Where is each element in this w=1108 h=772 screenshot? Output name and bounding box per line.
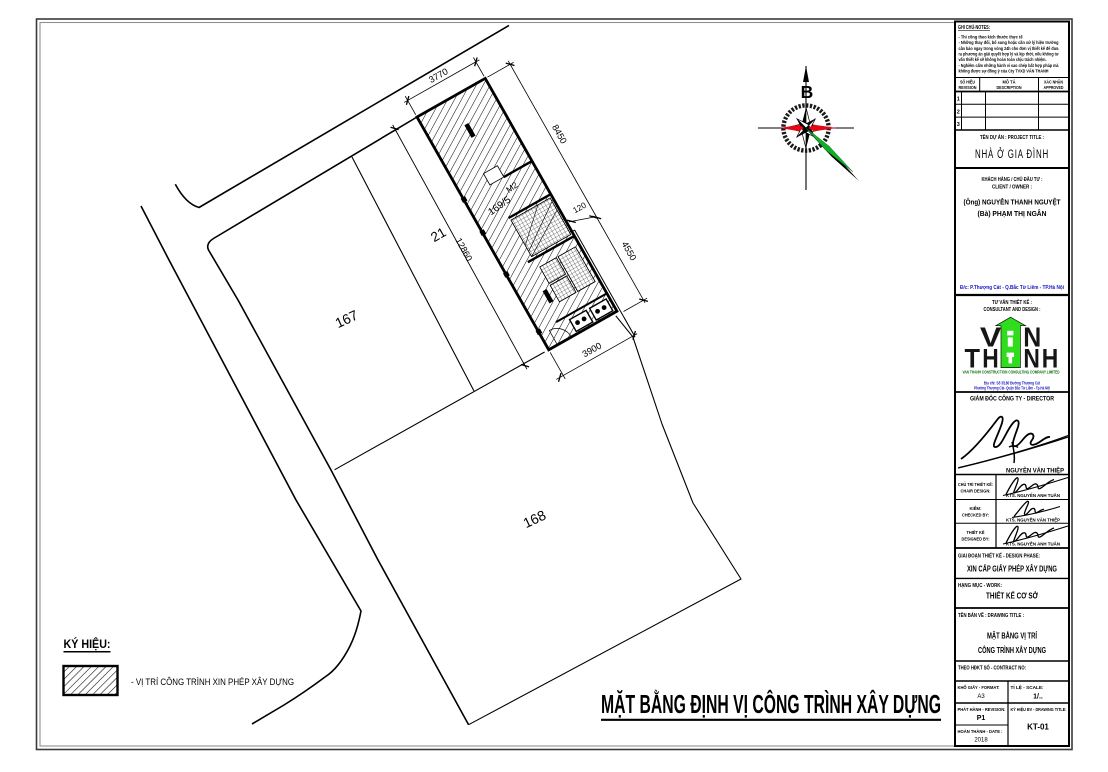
svg-text:CÔNG TRÌNH XÂY DỰNG: CÔNG TRÌNH XÂY DỰNG — [978, 646, 1046, 655]
svg-text:DESIGNED BY:: DESIGNED BY: — [962, 537, 990, 542]
svg-text:CHECKED BY:: CHECKED BY: — [962, 513, 989, 518]
svg-text:ra phương án giải quyết hợp lý: ra phương án giải quyết hợp lý và kịp th… — [959, 50, 1060, 56]
svg-text:KT-01: KT-01 — [1027, 723, 1049, 732]
svg-text:TÊN BẢN VẼ : DRAWING TITLE :: TÊN BẢN VẼ : DRAWING TITLE : — [958, 611, 1024, 619]
svg-text:không được sự đồng ý của Cty T: không được sự đồng ý của Cty TVXD VĂN TH… — [959, 67, 1049, 73]
svg-text:HẠNG MỤC - WORK:: HẠNG MỤC - WORK: — [958, 583, 1002, 589]
svg-text:(Ông) NGUYỄN THANH NGUYỆT: (Ông) NGUYỄN THANH NGUYỆT — [964, 198, 1061, 207]
svg-text:XÁC NHẬN: XÁC NHẬN — [1044, 80, 1063, 85]
svg-text:1/..: 1/.. — [1033, 694, 1043, 701]
svg-text:GHI CHÚ-NOTES:: GHI CHÚ-NOTES: — [958, 24, 990, 31]
svg-text:HOÀN THÀNH - DATE :: HOÀN THÀNH - DATE : — [958, 728, 1003, 735]
svg-text:TÊN DỰ ÁN : PROJECT TITLE :: TÊN DỰ ÁN : PROJECT TITLE : — [980, 133, 1044, 141]
svg-text:KHÁCH HÀNG / CHỦ ĐẦU TƯ :: KHÁCH HÀNG / CHỦ ĐẦU TƯ : — [982, 176, 1043, 183]
svg-text:vấn thiết kế sẽ không hoàn toà: vấn thiết kế sẽ không hoàn toàn chịu trá… — [959, 56, 1047, 62]
svg-text:KHỔ GIẤY - FORMAT:: KHỔ GIẤY - FORMAT: — [958, 684, 1000, 691]
svg-text:Đ/c: P.Thượng Cát - Q.Bắc Từ L: Đ/c: P.Thượng Cát - Q.Bắc Từ Liêm - TP.H… — [960, 284, 1064, 291]
svg-text:- Thi công theo kích thước thự: - Thi công theo kích thước thực tế — [959, 34, 1023, 40]
svg-text:MẶT BẰNG VỊ TRÍ: MẶT BẰNG VỊ TRÍ — [987, 632, 1038, 641]
svg-text:2018: 2018 — [974, 738, 988, 744]
svg-text:A3: A3 — [977, 694, 985, 700]
svg-text:(Bà) PHẠM THỊ NGÂN: (Bà) PHẠM THỊ NGÂN — [978, 209, 1047, 218]
svg-text:CLIENT / OWNER :: CLIENT / OWNER : — [992, 185, 1032, 191]
svg-text:GIÁM ĐỐC CÔNG TY - DIRECTOR: GIÁM ĐỐC CÔNG TY - DIRECTOR — [970, 395, 1054, 403]
svg-text:KIỂM:: KIỂM: — [970, 505, 982, 511]
svg-text:THIẾT KẾ CƠ SỞ: THIẾT KẾ CƠ SỞ — [986, 591, 1038, 601]
svg-text:TƯ VẤN THIẾT KẾ :: TƯ VẤN THIẾT KẾ : — [992, 299, 1032, 306]
svg-text:- VỊ TRÍ CÔNG TRÌNH XIN PHÉP X: - VỊ TRÍ CÔNG TRÌNH XIN PHÉP XÂY DỰNG — [131, 677, 294, 688]
svg-text:XIN CẤP GIẤY PHÉP XÂY DỰNG: XIN CẤP GIẤY PHÉP XÂY DỰNG — [967, 564, 1057, 574]
svg-text:NHÀ Ở GIA ĐÌNH: NHÀ Ở GIA ĐÌNH — [975, 148, 1049, 161]
svg-text:THIẾT KẾ: THIẾT KẾ — [967, 529, 985, 535]
svg-text:- Nghiêm cấm những hành vi sao: - Nghiêm cấm những hành vi sao chép bất … — [959, 62, 1059, 68]
svg-text:CHỦ TRÌ THIẾT KẾ:: CHỦ TRÌ THIẾT KẾ: — [958, 480, 993, 487]
svg-text:P1: P1 — [977, 715, 986, 722]
svg-text:cần báo ngay trong vòng 24h ch: cần báo ngay trong vòng 24h cho đơn vị t… — [959, 45, 1059, 51]
svg-text:NGUYỄN VĂN THIỆP: NGUYỄN VĂN THIỆP — [1006, 466, 1065, 475]
svg-text:THEO HĐKT SỐ - CONTRACT NO:: THEO HĐKT SỐ - CONTRACT NO: — [958, 665, 1026, 672]
svg-text:2: 2 — [957, 109, 960, 115]
svg-text:DESCRIPTION: DESCRIPTION — [997, 85, 1022, 90]
svg-text:VAN THANH CONSTRUCTION CONSULT: VAN THANH CONSTRUCTION CONSULTING COMPAN… — [963, 370, 1060, 375]
svg-text:- Những thay đổi, bổ sung hoặc: - Những thay đổi, bổ sung hoặc cần xử lý… — [959, 39, 1059, 45]
svg-text:Địa chỉ: Số 3/180 Đường Thượng: Địa chỉ: Số 3/180 Đường Thượng Cát — [984, 379, 1040, 385]
svg-text:REVISION: REVISION — [959, 85, 977, 90]
svg-text:Phường Thượng Cát- Quận Bắc Từ: Phường Thượng Cát- Quận Bắc Từ Liêm - Tp… — [974, 385, 1050, 391]
svg-text:KÝ HIỆU:: KÝ HIỆU: — [64, 638, 111, 651]
svg-text:CHAIR DESIGN:: CHAIR DESIGN: — [961, 489, 991, 494]
svg-text:CONSULTANT AND DESIGN :: CONSULTANT AND DESIGN : — [984, 307, 1041, 313]
svg-text:MÔ TẢ: MÔ TẢ — [1003, 80, 1017, 85]
svg-text:GIAI ĐOẠN THIẾT KẾ - DESIGN PH: GIAI ĐOẠN THIẾT KẾ - DESIGN PHASE: — [958, 553, 1040, 560]
svg-text:APPROVED: APPROVED — [1044, 85, 1064, 90]
svg-text:PHÁT HÀNH - REVISION:: PHÁT HÀNH - REVISION: — [958, 706, 1006, 713]
svg-text:1: 1 — [957, 97, 960, 103]
svg-text:3: 3 — [957, 122, 960, 128]
svg-text:B: B — [801, 82, 814, 102]
svg-text:SỐ HIỆU: SỐ HIỆU — [960, 80, 975, 85]
svg-text:MẶT BẰNG ĐỊNH VỊ CÔNG TRÌNH XÂ: MẶT BẰNG ĐỊNH VỊ CÔNG TRÌNH XÂY DỰNG — [601, 689, 941, 719]
